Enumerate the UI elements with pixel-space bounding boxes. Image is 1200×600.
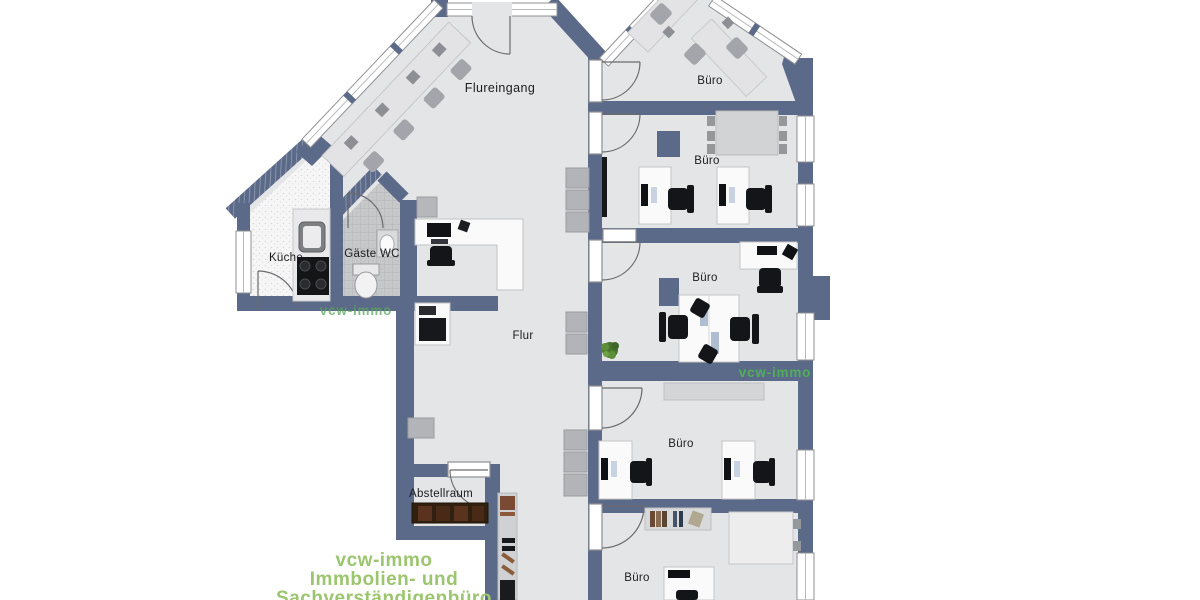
storage-shelf xyxy=(412,503,488,523)
room-label-buero-bottom: Büro xyxy=(624,572,650,584)
footer-line2: Immbolien- und xyxy=(310,569,458,590)
toilet xyxy=(353,264,379,298)
cabinet xyxy=(566,212,589,232)
cabinet xyxy=(417,197,437,217)
footer-line1: vcw-immo xyxy=(336,550,433,571)
footer-line3: Sachverständigenbüro xyxy=(276,588,492,600)
chair xyxy=(752,314,759,344)
watermark-right: vcw-immo xyxy=(739,365,811,380)
window xyxy=(797,313,814,360)
chair xyxy=(427,246,455,266)
cabinet-blue xyxy=(657,131,680,157)
room-label-kueche: Küche xyxy=(269,252,303,264)
chair xyxy=(707,131,715,141)
keyboard xyxy=(431,239,448,244)
flur-cabinets xyxy=(564,168,589,496)
room-label-flureingang: Flureingang xyxy=(465,81,535,95)
window xyxy=(797,553,814,600)
bookshelf xyxy=(645,508,711,530)
chair xyxy=(659,312,666,342)
cabinet-blue xyxy=(659,278,679,306)
floor-plan-svg: Flureingang Büro Büro Büro Büro Büro Küc… xyxy=(0,0,1200,600)
whiteboard xyxy=(602,157,607,217)
room-label-buero-lower: Büro xyxy=(668,438,694,450)
cabinet xyxy=(564,474,587,496)
monitor xyxy=(427,223,451,237)
chair xyxy=(707,144,715,154)
workstation xyxy=(664,567,714,600)
kitchen-sink-basin xyxy=(303,226,321,248)
table xyxy=(729,512,801,564)
cabinet xyxy=(564,430,587,450)
room-label-buero-middle: Büro xyxy=(692,272,718,284)
window xyxy=(797,116,814,162)
chair xyxy=(668,315,688,339)
wall-segment xyxy=(396,526,500,540)
cabinet xyxy=(566,312,587,332)
room-label-buero-upper: Büro xyxy=(694,155,720,167)
window xyxy=(797,184,814,226)
room-label-gaeste-wc: Gäste WC xyxy=(344,248,399,260)
wall-segment xyxy=(330,158,343,303)
wall-segment xyxy=(400,200,417,303)
room-label-buero-top: Büro xyxy=(697,75,723,87)
window xyxy=(447,2,557,17)
room-label-flur: Flur xyxy=(512,330,533,342)
cabinet xyxy=(566,334,587,354)
cabinet xyxy=(408,418,434,438)
chair xyxy=(779,131,787,141)
wall-segment xyxy=(588,101,813,115)
sideboard xyxy=(664,383,764,400)
cabinet xyxy=(564,452,587,472)
chair xyxy=(779,116,787,126)
footer-branding: vcw-immo Immbolien- und Sachverständigen… xyxy=(276,550,492,600)
window xyxy=(797,450,814,500)
watermark-left: vcw-immo xyxy=(320,303,392,318)
meeting-table xyxy=(716,111,778,155)
printer-station xyxy=(415,303,450,345)
window xyxy=(236,231,251,293)
corridor-shelf xyxy=(498,493,517,600)
chair xyxy=(779,144,787,154)
chair xyxy=(707,116,715,126)
cabinet xyxy=(566,168,589,188)
room-label-abstellraum: Abstellraum xyxy=(409,488,473,500)
cabinet xyxy=(566,190,589,210)
chair xyxy=(730,317,750,341)
